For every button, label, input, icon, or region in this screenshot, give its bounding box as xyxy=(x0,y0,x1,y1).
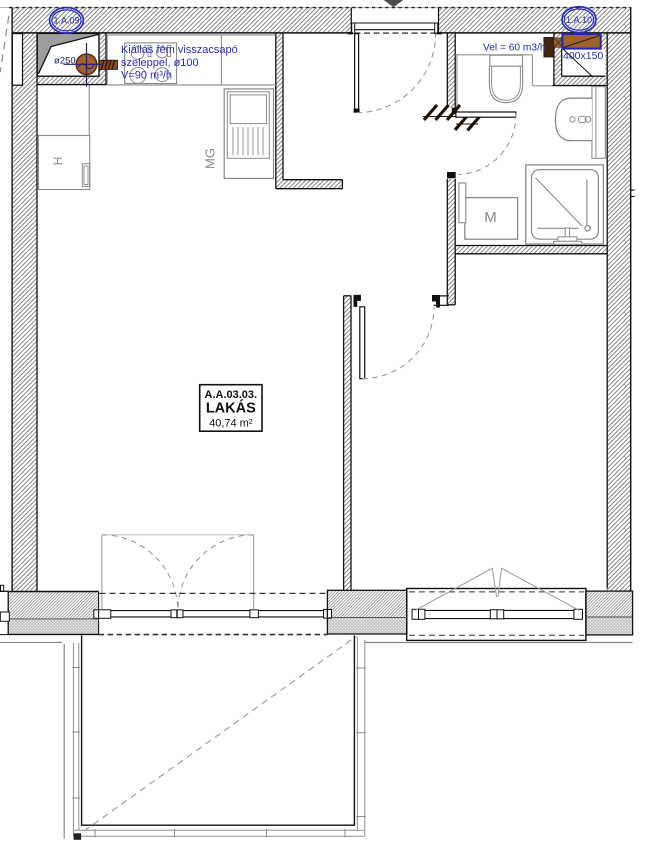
svg-text:40,74 m²: 40,74 m² xyxy=(209,418,253,430)
svg-text:ø250: ø250 xyxy=(54,56,76,67)
svg-text:400x150: 400x150 xyxy=(563,50,603,62)
svg-text:szeleppel, ø100: szeleppel, ø100 xyxy=(121,57,199,69)
svg-text:Vel = 60 m3/h: Vel = 60 m3/h xyxy=(483,42,546,53)
svg-text:H: H xyxy=(51,157,65,166)
svg-text:1.A.10: 1.A.10 xyxy=(566,15,592,25)
svg-text:V=90 m³/h: V=90 m³/h xyxy=(121,70,172,82)
svg-text:LAKÁS: LAKÁS xyxy=(206,400,256,417)
svg-text:A.A.03.03.: A.A.03.03. xyxy=(205,389,258,401)
svg-text:MG: MG xyxy=(203,148,218,169)
svg-text:1.A.09: 1.A.09 xyxy=(53,16,79,26)
svg-text:M: M xyxy=(484,209,497,226)
svg-text:Kiállás fém visszacsapó: Kiállás fém visszacsapó xyxy=(121,44,238,56)
